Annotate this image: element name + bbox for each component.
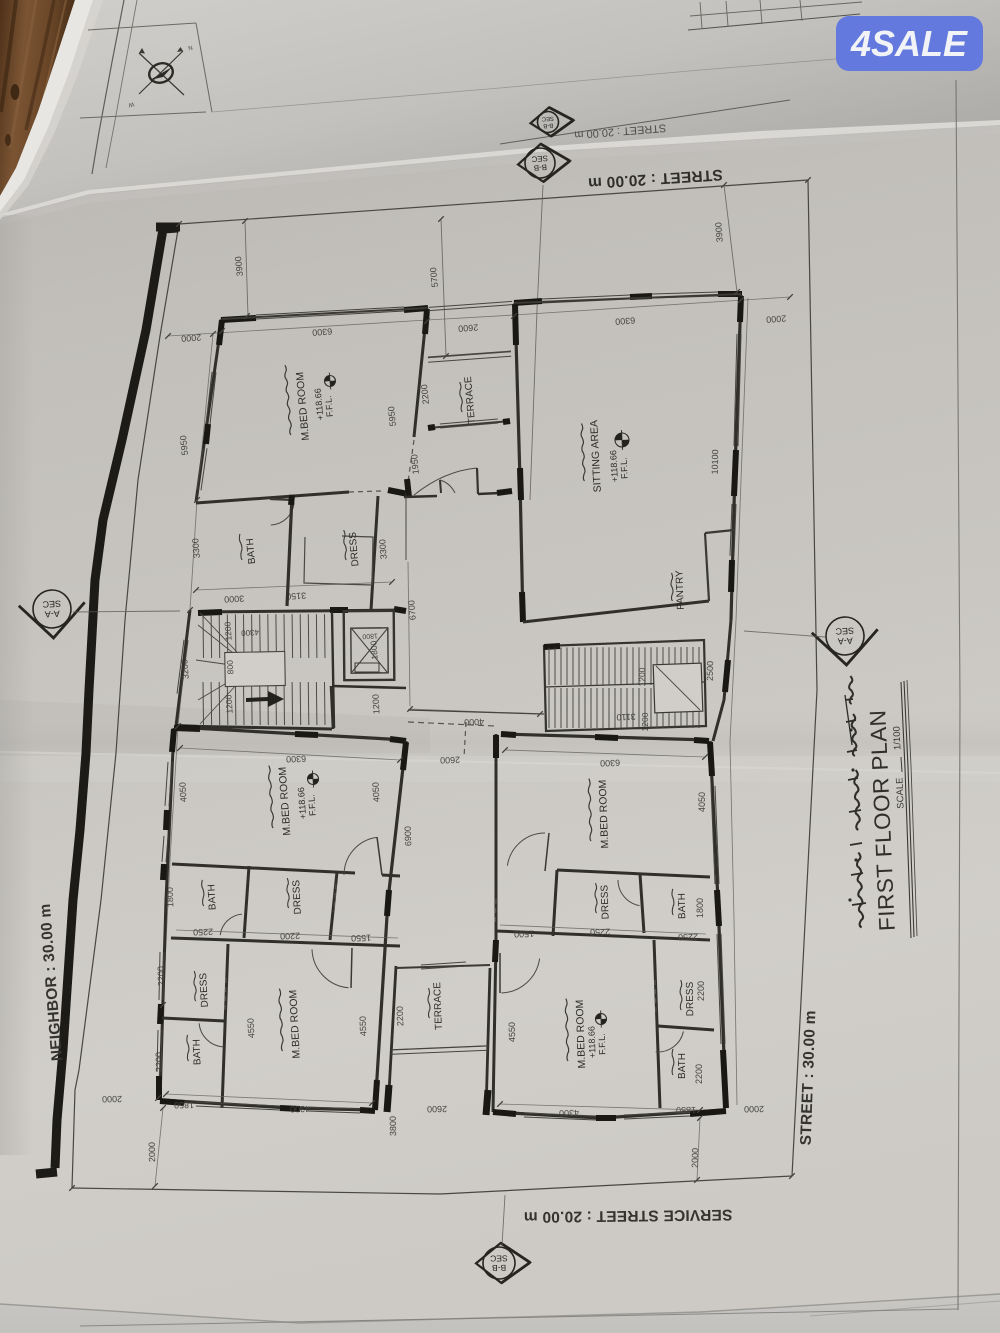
- svg-text:2200: 2200: [694, 1064, 704, 1084]
- svg-text:6700: 6700: [406, 600, 417, 621]
- svg-text:1200: 1200: [370, 694, 381, 715]
- svg-text:2200: 2200: [419, 384, 431, 405]
- svg-text:2600: 2600: [458, 322, 479, 333]
- svg-text:2250: 2250: [678, 932, 698, 943]
- svg-text:4300: 4300: [290, 1104, 310, 1114]
- svg-text:2000: 2000: [766, 313, 787, 324]
- svg-text:2250: 2250: [590, 927, 610, 938]
- svg-text:6300: 6300: [615, 315, 636, 326]
- svg-text:1550: 1550: [351, 933, 371, 944]
- svg-text:B-B: B-B: [543, 122, 553, 129]
- svg-text:2600: 2600: [427, 1104, 447, 1114]
- svg-text:SEC: SEC: [490, 1253, 508, 1263]
- svg-text:6300: 6300: [600, 758, 620, 769]
- svg-text:BATH: BATH: [206, 884, 218, 910]
- svg-text:4550: 4550: [358, 1016, 369, 1036]
- svg-text:1200: 1200: [222, 621, 233, 641]
- svg-text:4050: 4050: [697, 792, 707, 812]
- svg-text:SEC: SEC: [42, 599, 62, 610]
- svg-text:2000: 2000: [102, 1094, 122, 1104]
- svg-text:1500: 1500: [514, 929, 534, 940]
- svg-text:10100: 10100: [710, 449, 720, 474]
- svg-text:4300: 4300: [240, 628, 259, 638]
- svg-text:1800: 1800: [695, 898, 705, 918]
- svg-text:1950: 1950: [409, 454, 421, 475]
- svg-text:6300: 6300: [312, 326, 333, 337]
- svg-text:2600: 2600: [440, 755, 460, 766]
- svg-text:1200: 1200: [223, 694, 234, 714]
- svg-text:3800: 3800: [388, 1116, 398, 1136]
- svg-text:BATH: BATH: [192, 1039, 204, 1065]
- svg-text:F.F.L.: F.F.L.: [618, 457, 629, 479]
- svg-text:3300: 3300: [190, 538, 202, 559]
- svg-text:SCALE: SCALE: [894, 777, 906, 809]
- svg-text:3300: 3300: [377, 539, 388, 560]
- svg-text:3900: 3900: [233, 256, 245, 277]
- svg-text:M.BED ROOM: M.BED ROOM: [597, 779, 611, 848]
- svg-text:1800: 1800: [368, 640, 379, 660]
- svg-text:3900: 3900: [713, 222, 724, 243]
- svg-text:6900: 6900: [403, 826, 414, 846]
- svg-text:4050: 4050: [177, 782, 188, 803]
- svg-text:1/100: 1/100: [891, 726, 903, 750]
- svg-text:5700: 5700: [428, 267, 440, 288]
- svg-text:+118.66: +118.66: [586, 1026, 597, 1058]
- svg-text:2000: 2000: [744, 1104, 764, 1114]
- svg-text:4550: 4550: [507, 1022, 517, 1042]
- svg-text:SERVICE STREET : 20.00 m: SERVICE STREET : 20.00 m: [524, 1206, 733, 1226]
- svg-text:DRESS: DRESS: [599, 884, 611, 919]
- svg-text:2000: 2000: [147, 1142, 157, 1162]
- svg-text:SEC: SEC: [531, 153, 548, 163]
- svg-text:4550: 4550: [245, 1018, 256, 1039]
- svg-text:5950: 5950: [386, 406, 398, 427]
- svg-text:SEC: SEC: [835, 626, 855, 637]
- svg-text:5950: 5950: [178, 435, 190, 456]
- svg-text:F.F.L.: F.F.L.: [597, 1033, 608, 1055]
- svg-text:1850: 1850: [174, 1100, 194, 1110]
- svg-text:2200: 2200: [395, 1006, 406, 1026]
- svg-text:PANTRY: PANTRY: [674, 570, 686, 610]
- svg-text:SEC: SEC: [541, 115, 554, 122]
- svg-text:2250: 2250: [193, 927, 213, 938]
- svg-text:DRESS: DRESS: [685, 981, 697, 1016]
- svg-text:F.F.L.: F.F.L.: [323, 395, 335, 417]
- svg-text:1800: 1800: [362, 632, 378, 640]
- svg-text:2200: 2200: [280, 931, 300, 942]
- svg-text:BATH: BATH: [677, 893, 688, 919]
- svg-text:TERRACE: TERRACE: [432, 982, 445, 1030]
- svg-text:BATH: BATH: [245, 538, 258, 565]
- svg-text:4050: 4050: [370, 782, 381, 803]
- svg-text:2500: 2500: [705, 661, 715, 681]
- svg-text:4SALE: 4SALE: [850, 23, 968, 64]
- svg-text:4300: 4300: [559, 1108, 579, 1118]
- svg-text:6300: 6300: [286, 754, 306, 765]
- svg-text:F.F.L.: F.F.L.: [306, 794, 317, 816]
- svg-text:800: 800: [225, 660, 236, 675]
- svg-text:DRESS: DRESS: [291, 879, 304, 914]
- svg-text:2000: 2000: [181, 332, 202, 343]
- svg-text:BATH: BATH: [677, 1053, 688, 1079]
- svg-text:2200: 2200: [696, 981, 706, 1001]
- svg-text:DRESS: DRESS: [198, 972, 211, 1007]
- svg-text:3000: 3000: [224, 593, 245, 604]
